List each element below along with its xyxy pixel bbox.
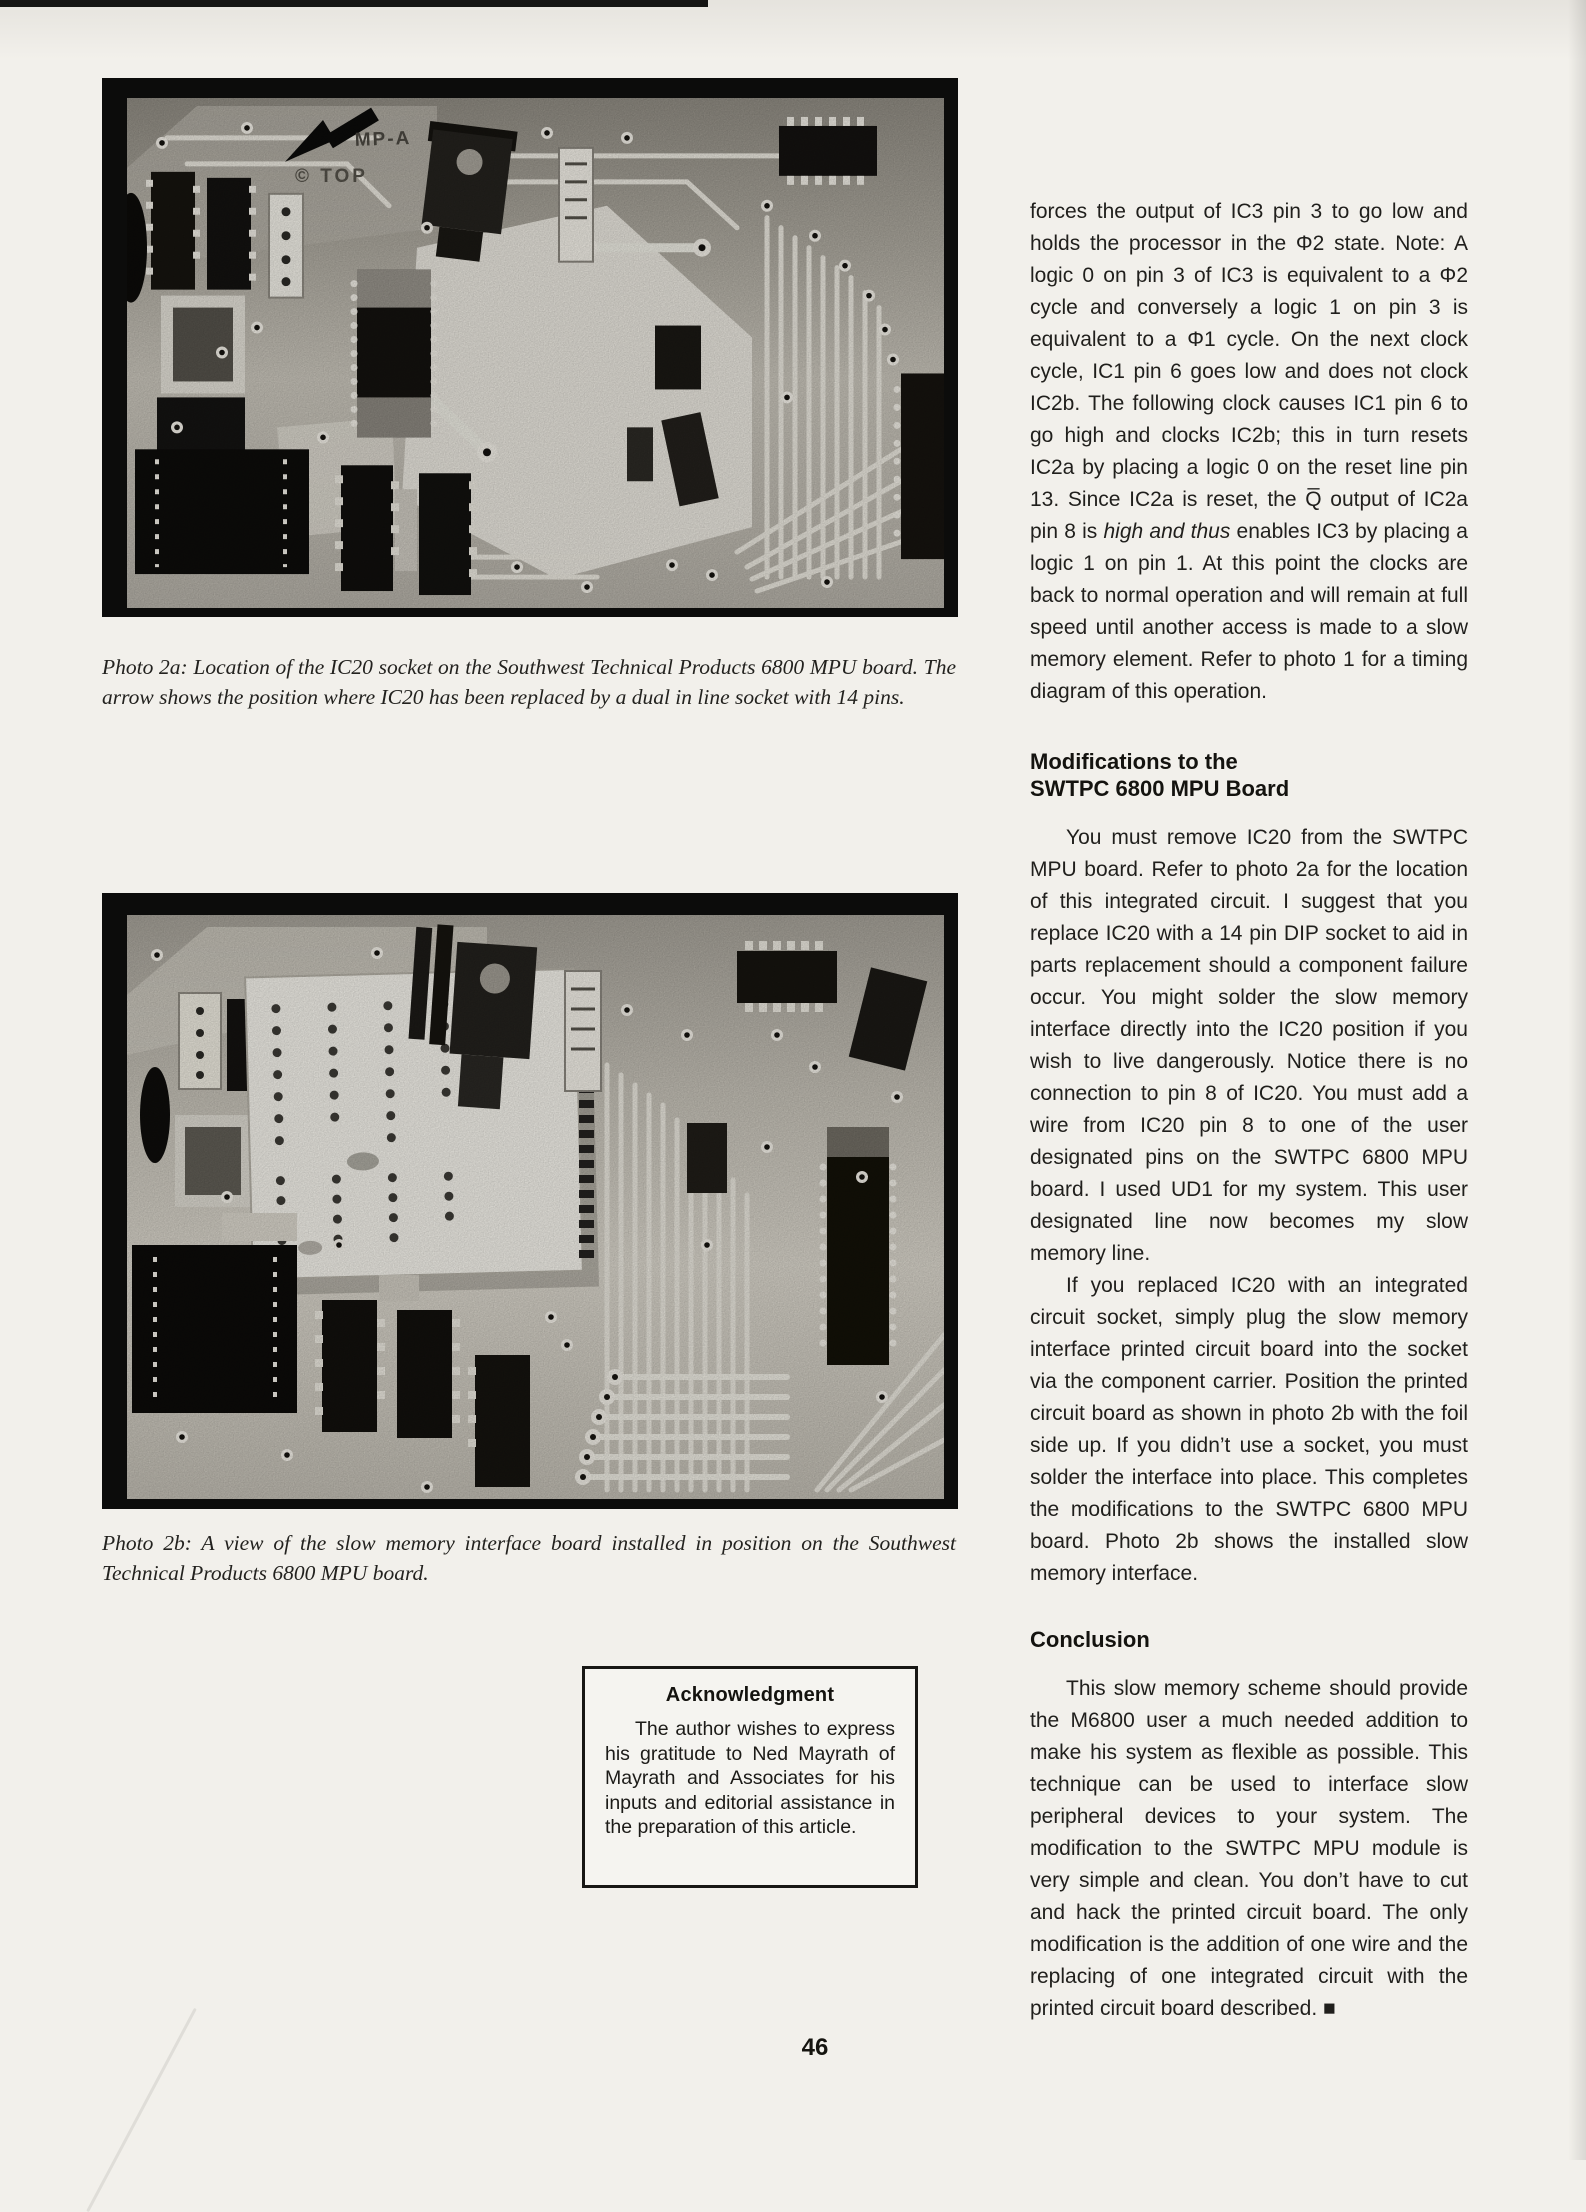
heading-line: SWTPC 6800 MPU Board [1030, 776, 1289, 801]
photo-2a-circuit-board: MP-A © TOP [102, 78, 958, 617]
magazine-page: { "page": { "number": "46" }, "left_colu… [0, 0, 1586, 2160]
section-heading-modifications: Modifications to theSWTPC 6800 MPU Board [1030, 748, 1468, 802]
page-shading-right-edge [1568, 0, 1586, 2160]
article-paragraph-modifications-2: If you replaced IC20 with an integrated … [1030, 1270, 1468, 1590]
paragraph-italic-text: high and thus [1103, 520, 1230, 543]
photo-2a-caption: Photo 2a: Location of the IC20 socket on… [102, 652, 956, 712]
photo-2b-circuit-board [102, 893, 958, 1509]
photo-2a-illustration: MP-A © TOP [127, 98, 944, 608]
page-shading-top [0, 0, 1586, 60]
photo-grain-overlay [127, 915, 944, 1499]
page-number: 46 [770, 2034, 860, 2062]
article-paragraph-continuation: forces the output of IC3 pin 3 to go low… [1030, 196, 1468, 708]
photo-2b-illustration [127, 915, 944, 1499]
acknowledgment-body: The author wishes to express his gratitu… [605, 1717, 895, 1840]
article-text-column: forces the output of IC3 pin 3 to go low… [1030, 196, 1468, 2025]
article-paragraph-modifications-1: You must remove IC20 from the SWTPC MPU … [1030, 822, 1468, 1270]
acknowledgment-box: Acknowledgment The author wishes to expr… [582, 1666, 918, 1888]
section-heading-conclusion: Conclusion [1030, 1626, 1468, 1653]
paragraph-text: enables IC3 by placing a logic 1 on pin … [1030, 520, 1468, 703]
photo-grain-overlay [127, 98, 944, 608]
scan-artifact-pencil-mark [86, 2008, 197, 2212]
paragraph-text: forces the output of IC3 pin 3 to go low… [1030, 200, 1468, 543]
article-paragraph-conclusion: This slow memory scheme should provide t… [1030, 1673, 1468, 2025]
acknowledgment-title: Acknowledgment [605, 1684, 895, 1707]
heading-line: Modifications to the [1030, 749, 1238, 774]
photo-2b-caption: Photo 2b: A view of the slow memory inte… [102, 1528, 956, 1588]
